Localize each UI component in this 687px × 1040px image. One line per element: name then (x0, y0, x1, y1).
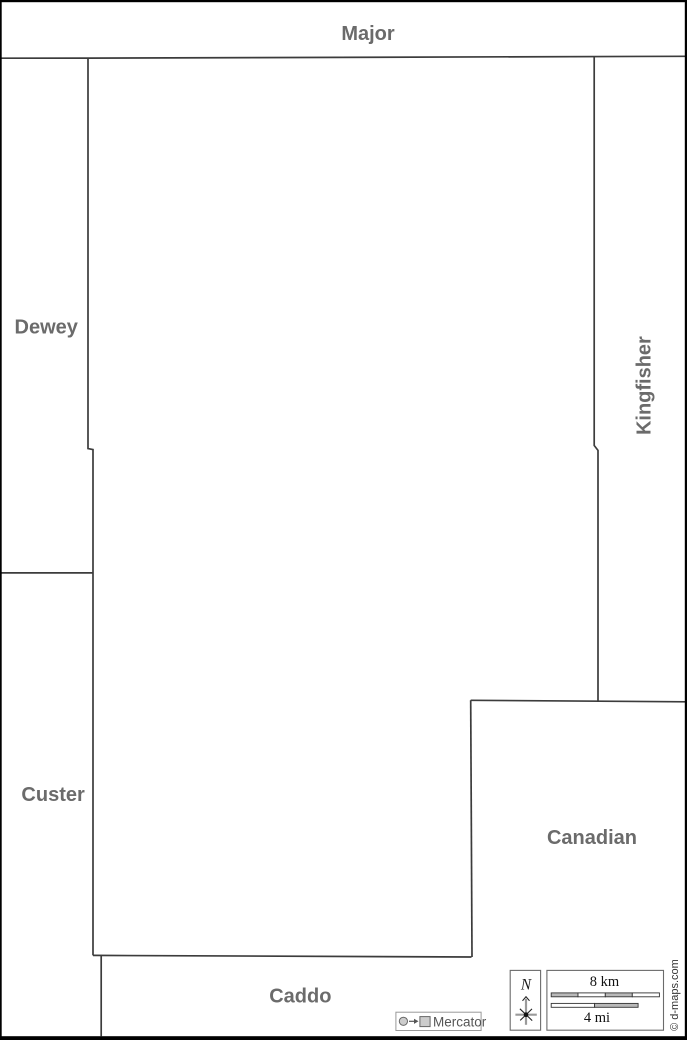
svg-text:© d-maps.com: © d-maps.com (669, 959, 681, 1031)
svg-text:Major: Major (341, 23, 395, 45)
svg-text:4 mi: 4 mi (584, 1010, 610, 1026)
svg-text:Kingfisher: Kingfisher (634, 336, 656, 435)
svg-text:Caddo: Caddo (269, 986, 331, 1008)
svg-text:Custer: Custer (21, 784, 85, 806)
svg-text:Dewey: Dewey (15, 316, 79, 338)
svg-text:Canadian: Canadian (547, 827, 637, 849)
svg-text:Mercator: Mercator (433, 1015, 487, 1030)
svg-text:N: N (520, 977, 532, 994)
svg-text:8 km: 8 km (590, 974, 620, 990)
